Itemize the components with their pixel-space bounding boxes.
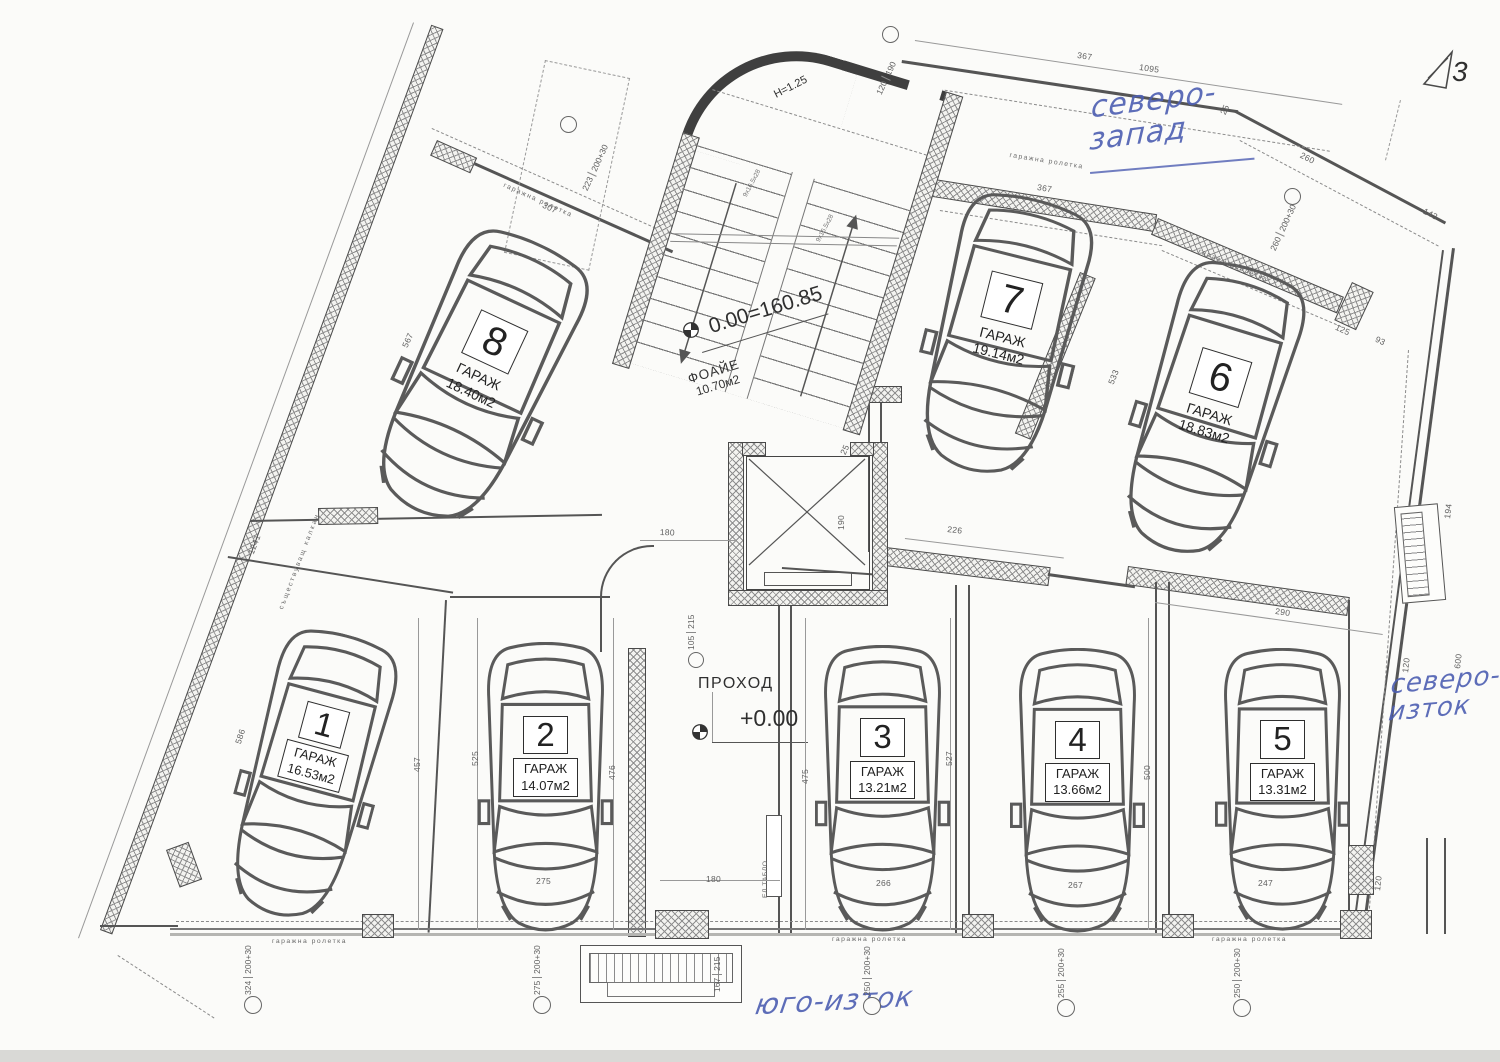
section-marker-number: 3 bbox=[1452, 56, 1468, 88]
benchmark-marker bbox=[690, 722, 710, 742]
roller-door-label: гаражна ролетка bbox=[832, 936, 907, 943]
handwritten-northwest: северо- запад bbox=[1089, 77, 1218, 156]
wall bbox=[100, 925, 178, 927]
garage-tag: 4 ГАРАЖ13.66м2 bbox=[1028, 721, 1128, 802]
garage-number: 4 bbox=[1055, 721, 1099, 760]
dimension-label: 25 bbox=[1218, 103, 1231, 116]
car-garage-5: 5 ГАРАЖ13.31м2 bbox=[1215, 648, 1350, 936]
wall bbox=[1155, 582, 1157, 933]
garage-tag: 3 ГАРАЖ13.21м2 bbox=[833, 718, 933, 799]
leader-line bbox=[712, 692, 713, 742]
garage-word: ГАРАЖ bbox=[1053, 766, 1102, 782]
car-garage-2: 2 ГАРАЖ14.07м2 bbox=[478, 642, 613, 937]
wall bbox=[968, 585, 970, 933]
wall bbox=[1168, 582, 1170, 933]
wall-pier bbox=[1162, 914, 1194, 938]
dimension-label: 250200+30 bbox=[862, 946, 872, 996]
dimension-line bbox=[640, 540, 736, 541]
dimension-label: 290 bbox=[1275, 606, 1291, 618]
elevator-sill bbox=[764, 572, 852, 586]
dimension-label: 93 bbox=[1374, 334, 1387, 347]
dimension-label: 167215 bbox=[712, 957, 722, 992]
garage-number: 5 bbox=[1260, 720, 1304, 759]
handwritten-southeast: юго-изток bbox=[753, 982, 915, 1020]
car-garage-4: 4 ГАРАЖ13.66м2 bbox=[1010, 648, 1145, 938]
dimension-label: 194 bbox=[1442, 503, 1454, 519]
door-marker bbox=[688, 652, 704, 668]
wall bbox=[228, 556, 454, 594]
car-garage-7: 7 ГАРАЖ19.14м2 bbox=[893, 180, 1112, 494]
car-garage-6: 6 ГАРАЖ18.83м2 bbox=[1094, 247, 1325, 578]
dimension-label: 255200+30 bbox=[1056, 948, 1066, 998]
dimension-label: 180 bbox=[660, 527, 675, 538]
dimension-label: 367 bbox=[1077, 50, 1093, 62]
car-garage-8: 8 ГАРАЖ18.40м2 bbox=[342, 211, 612, 550]
wall-pier bbox=[1348, 845, 1374, 895]
garage-area: 13.21м2 bbox=[858, 780, 907, 796]
wall-pier bbox=[362, 914, 394, 938]
dashed-line bbox=[117, 955, 214, 1018]
garage-number: 3 bbox=[860, 718, 904, 757]
dimension-label: 275200+30 bbox=[532, 945, 542, 995]
dimension-label: 525 bbox=[470, 751, 480, 766]
dimension-label: 500 bbox=[1142, 765, 1152, 780]
dimension-label: 367 bbox=[1036, 182, 1052, 194]
garage-tag: 2 ГАРАЖ14.07м2 bbox=[496, 716, 596, 797]
door-marker bbox=[244, 996, 262, 1014]
drain-grate bbox=[1394, 503, 1446, 603]
wall-pier bbox=[962, 914, 994, 938]
garage-area: 13.66м2 bbox=[1053, 782, 1102, 798]
party-wall-label: съществуващ калкан bbox=[278, 512, 321, 610]
floor-plan-sheet: 9x16.5x28 9x16.5x28 H=1.25 1 ГАРАЖ16.53м… bbox=[0, 0, 1500, 1062]
dimension-label: 476 bbox=[607, 765, 617, 780]
roller-door-label: гаражна ролетка bbox=[272, 938, 347, 945]
dimension-line bbox=[477, 618, 478, 930]
dimension-label: 266 bbox=[876, 878, 891, 888]
door-marker bbox=[1057, 999, 1075, 1017]
dashed-line bbox=[1385, 100, 1402, 161]
car-garage-1: 1 ГАРАЖ16.53м2 bbox=[204, 617, 416, 938]
wall bbox=[1444, 838, 1446, 934]
grate-box bbox=[607, 982, 715, 997]
wall bbox=[1235, 110, 1446, 224]
roller-door-label: гаражна ролетка bbox=[1009, 152, 1084, 171]
dimension-label: 586 bbox=[233, 728, 247, 745]
garage-word: ГАРАЖ bbox=[1258, 766, 1307, 782]
dimension-label: 324200+30 bbox=[243, 945, 253, 995]
wall bbox=[742, 442, 766, 456]
dimension-label: 475 bbox=[800, 769, 810, 784]
roller-door-label: гаражна ролетка bbox=[1212, 936, 1287, 943]
door-marker bbox=[1233, 999, 1251, 1017]
level-underline bbox=[712, 742, 808, 743]
dimension-label: 275 bbox=[536, 876, 551, 886]
garage-area: 14.07м2 bbox=[521, 778, 570, 794]
handwritten-line: юго-изток bbox=[753, 982, 915, 1020]
garage-number: 2 bbox=[523, 716, 567, 755]
dimension-label: 1095 bbox=[1139, 62, 1160, 75]
dimension-label: 247 bbox=[1258, 878, 1273, 888]
dimension-label: 226 bbox=[947, 524, 963, 536]
dimension-label: 600 bbox=[1452, 653, 1464, 669]
curved-wall bbox=[600, 545, 654, 652]
dimension-label: 260200+30 bbox=[1268, 203, 1298, 252]
passage-name: ПРОХОД bbox=[698, 675, 774, 693]
wall-pier bbox=[318, 507, 378, 525]
wall bbox=[790, 600, 792, 935]
garage-word: ГАРАЖ bbox=[858, 764, 907, 780]
dimension-label: 267 bbox=[1068, 880, 1083, 890]
dimension-label: 105215 bbox=[686, 615, 696, 650]
elevator-cross bbox=[746, 456, 868, 568]
dimension-label: 250200+30 bbox=[1232, 948, 1242, 998]
dimension-label: 457 bbox=[412, 757, 422, 772]
wall-pier bbox=[166, 842, 202, 888]
grate-hatch bbox=[1400, 512, 1429, 598]
wall bbox=[1048, 573, 1135, 588]
door-marker bbox=[882, 26, 899, 43]
wall bbox=[955, 585, 957, 933]
garage-tag: 5 ГАРАЖ13.31м2 bbox=[1233, 720, 1333, 801]
passage-level: +0.00 bbox=[740, 705, 798, 732]
dimension-label: 120 bbox=[1372, 875, 1384, 891]
wall-pier bbox=[655, 910, 709, 939]
elevator-shaft bbox=[728, 442, 886, 604]
dimension-label: 120 bbox=[1400, 657, 1412, 673]
dimension-label: 190 bbox=[836, 515, 846, 530]
car-garage-3: 3 ГАРАЖ13.21м2 bbox=[815, 645, 950, 937]
dimension-line bbox=[950, 618, 951, 930]
roof-dashed-line bbox=[1240, 140, 1439, 247]
dimension-label: 180 bbox=[706, 874, 721, 884]
door-marker bbox=[863, 997, 881, 1015]
garage-word: ГАРАЖ bbox=[521, 761, 570, 777]
wall bbox=[728, 590, 888, 606]
dimension-label: 527 bbox=[944, 751, 954, 766]
wall bbox=[850, 442, 874, 456]
wall bbox=[450, 596, 610, 598]
benchmark-marker bbox=[681, 320, 701, 340]
door-marker bbox=[533, 996, 551, 1014]
wall bbox=[1426, 838, 1428, 934]
wall bbox=[628, 648, 646, 937]
dimension-line bbox=[418, 618, 419, 930]
handwritten-underline bbox=[1090, 158, 1255, 174]
dashed-line bbox=[1368, 350, 1410, 929]
door-marker bbox=[1284, 188, 1301, 205]
handwritten-line: изток bbox=[1387, 690, 1499, 727]
wall bbox=[872, 442, 888, 606]
wall bbox=[428, 600, 447, 933]
door-marker bbox=[560, 116, 577, 133]
garage-area: 13.31м2 bbox=[1258, 782, 1307, 798]
dimension-label: 533 bbox=[1106, 368, 1121, 386]
scan-edge bbox=[0, 1050, 1500, 1062]
wall bbox=[728, 442, 744, 606]
